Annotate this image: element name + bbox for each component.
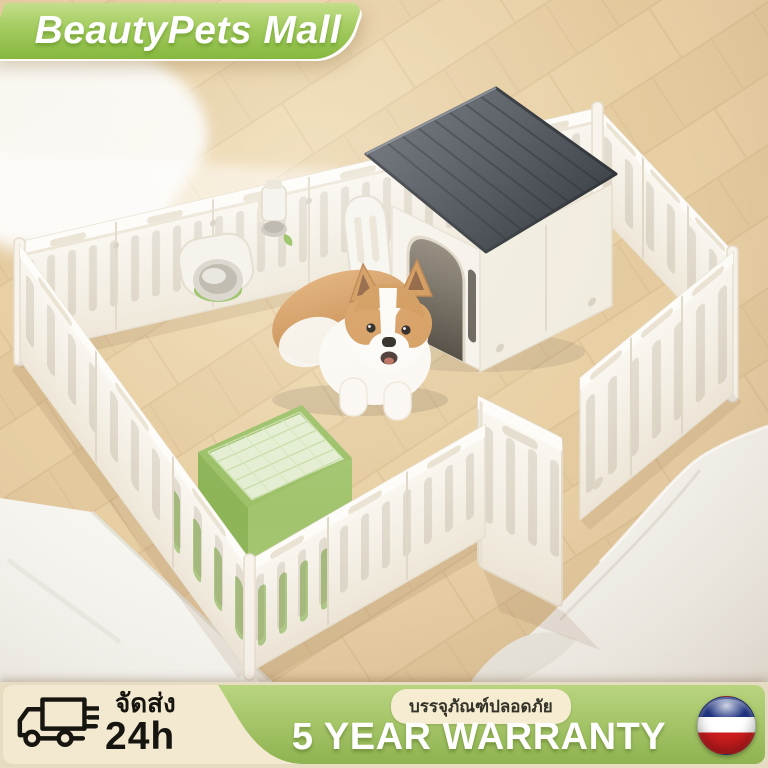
product-image: BeautyPets Mall <box>0 0 768 768</box>
scene-illustration <box>0 0 768 768</box>
warranty-text: 5 YEAR WARRANTY <box>261 716 697 759</box>
promo-banner-card: จัดส่ง 24h บรรจุภัณฑ์ปลอดภัย 5 YEAR WARR… <box>3 685 765 764</box>
brand-ribbon: BeautyPets Mall <box>0 3 363 59</box>
shipping-block: จัดส่ง 24h <box>15 690 176 756</box>
truck-icon <box>15 692 99 754</box>
flag-roundel-icon <box>697 696 756 755</box>
shipping-time: 24h <box>105 717 176 756</box>
light-overlay <box>0 0 768 768</box>
shipping-label: จัดส่ง <box>105 690 176 716</box>
promo-banner: จัดส่ง 24h บรรจุภัณฑ์ปลอดภัย 5 YEAR WARR… <box>0 682 768 768</box>
brand-name: BeautyPets Mall <box>8 9 341 53</box>
shipping-text: จัดส่ง 24h <box>105 690 176 756</box>
